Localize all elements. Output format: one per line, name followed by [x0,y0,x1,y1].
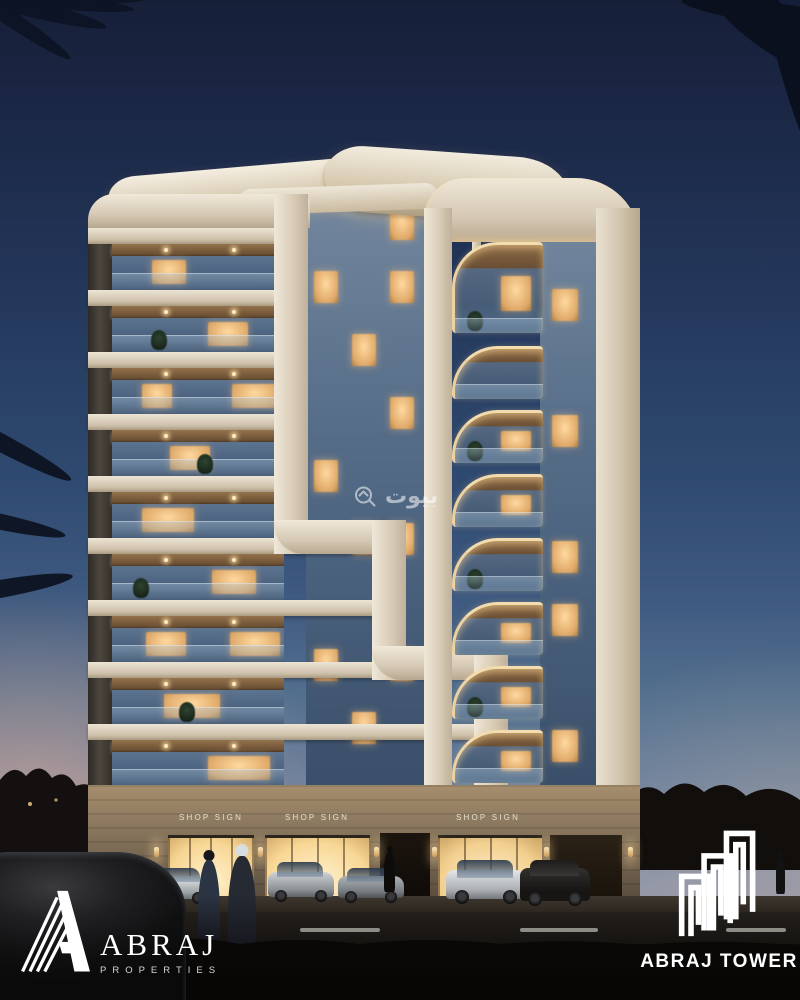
stone-pier [88,740,112,786]
lit-window [552,604,578,636]
glass-railing [112,769,284,786]
right-curtain-wall [540,208,596,786]
floor-band [88,600,384,616]
parked-car-black-suv [520,864,590,906]
downlight [164,372,168,376]
palm-frond-icon [0,400,90,650]
balcony-ceiling [112,368,284,380]
downlight [232,682,236,686]
lit-window [352,334,376,366]
balcony-ceiling [112,616,284,628]
palm-frond-icon [0,0,184,94]
right-wing-balconies [452,242,540,786]
curved-balcony-cell [452,538,543,591]
parked-car-silver-suv [268,872,334,902]
glass-railing [112,397,284,414]
downlight [164,744,168,748]
balcony-ceiling [112,306,284,318]
shop-sign-label: SHOP SIGN [285,813,349,822]
downlight [164,620,168,624]
downlight [232,248,236,252]
shop-sign-label: SHOP SIGN [179,813,243,822]
balcony-ceiling [112,554,284,566]
glass-railing [455,576,543,591]
downlight [164,248,168,252]
downlight [232,496,236,500]
curved-balcony-cell [452,346,543,399]
dusk-architectural-render: SHOP SIGN SHOP SIGN SHOP SIGN [0,0,800,1000]
floor-band [88,352,284,368]
bayut-watermark: بيوت [352,483,438,509]
balcony [88,554,284,600]
shop-sign-label: SHOP SIGN [456,813,520,822]
glass-railing [112,273,284,290]
glass-railing [455,384,543,399]
downlight [232,310,236,314]
balcony [88,492,284,538]
glass-railing [455,512,543,527]
stone-pier [88,430,112,476]
downlight [164,496,168,500]
abraj-tower-logo: ABRAJ TOWER [640,826,798,973]
stone-pier [88,368,112,414]
lit-window [314,271,338,303]
curved-balcony-cell [452,474,543,527]
right-wing-right-frame [596,208,640,786]
balcony-plant [151,330,167,350]
floor-band [88,290,284,306]
balcony [88,740,284,786]
balcony [88,368,284,414]
lit-window [552,730,578,762]
lit-window [314,460,338,492]
abraj-striped-a-mark [16,888,90,976]
watermark-text: بيوت [385,484,438,509]
glass-railing [455,318,543,333]
lit-window [552,541,578,573]
balcony-plant [197,454,213,474]
balcony [88,244,284,290]
stone-pier [88,678,112,724]
curved-balcony-cell [452,666,543,719]
glass-railing [112,521,284,538]
downlight [232,434,236,438]
floor-band [88,228,284,244]
downlight [232,744,236,748]
downlight [164,558,168,562]
downlight [164,434,168,438]
floor-band [88,414,284,430]
downlight [232,372,236,376]
glass-railing [455,640,543,655]
properties-logo-subtitle: PROPERTIES [100,965,221,976]
balcony [88,616,284,662]
stone-pier [88,554,112,600]
balcony-plant [133,578,149,598]
lit-window [390,271,414,303]
bayut-house-search-icon [352,483,378,509]
tower-building: SHOP SIGN SHOP SIGN SHOP SIGN [88,148,640,906]
curved-balcony-cell [452,242,543,333]
balcony-ceiling [112,492,284,504]
stone-pier [88,244,112,290]
downlight [232,558,236,562]
lit-window [501,276,531,311]
curved-balcony-cell [452,602,543,655]
abraj-tower-building-mark [671,826,767,938]
glass-railing [455,768,543,783]
lit-window [552,415,578,447]
glass-railing [455,448,543,463]
balcony-ceiling [112,740,284,752]
downlight [232,620,236,624]
stone-pier [88,616,112,662]
curved-balcony-cell [452,410,543,463]
balcony-ceiling [112,244,284,256]
glass-railing [112,707,284,724]
lit-window [390,397,414,429]
glass-railing [455,704,543,719]
downlight [164,682,168,686]
balcony-ceiling [112,678,284,690]
balcony-plant [179,702,195,722]
pedestrian-small [384,846,395,892]
curved-balcony-cell [452,730,543,783]
stone-pier [88,492,112,538]
properties-logo-title: ABRAJ [100,929,221,960]
stone-pier [88,306,112,352]
tower-logo-title: ABRAJ TOWER [640,951,798,973]
abraj-properties-logo: ABRAJ PROPERTIES [16,888,221,976]
glass-railing [112,335,284,352]
parked-car-white-suv [446,864,526,904]
lit-window [552,289,578,321]
glass-railing [112,645,284,662]
balcony [88,678,284,724]
balcony [88,430,284,476]
downlight [164,310,168,314]
floor-band [88,476,284,492]
balcony-ceiling [112,430,284,442]
balcony [88,306,284,352]
